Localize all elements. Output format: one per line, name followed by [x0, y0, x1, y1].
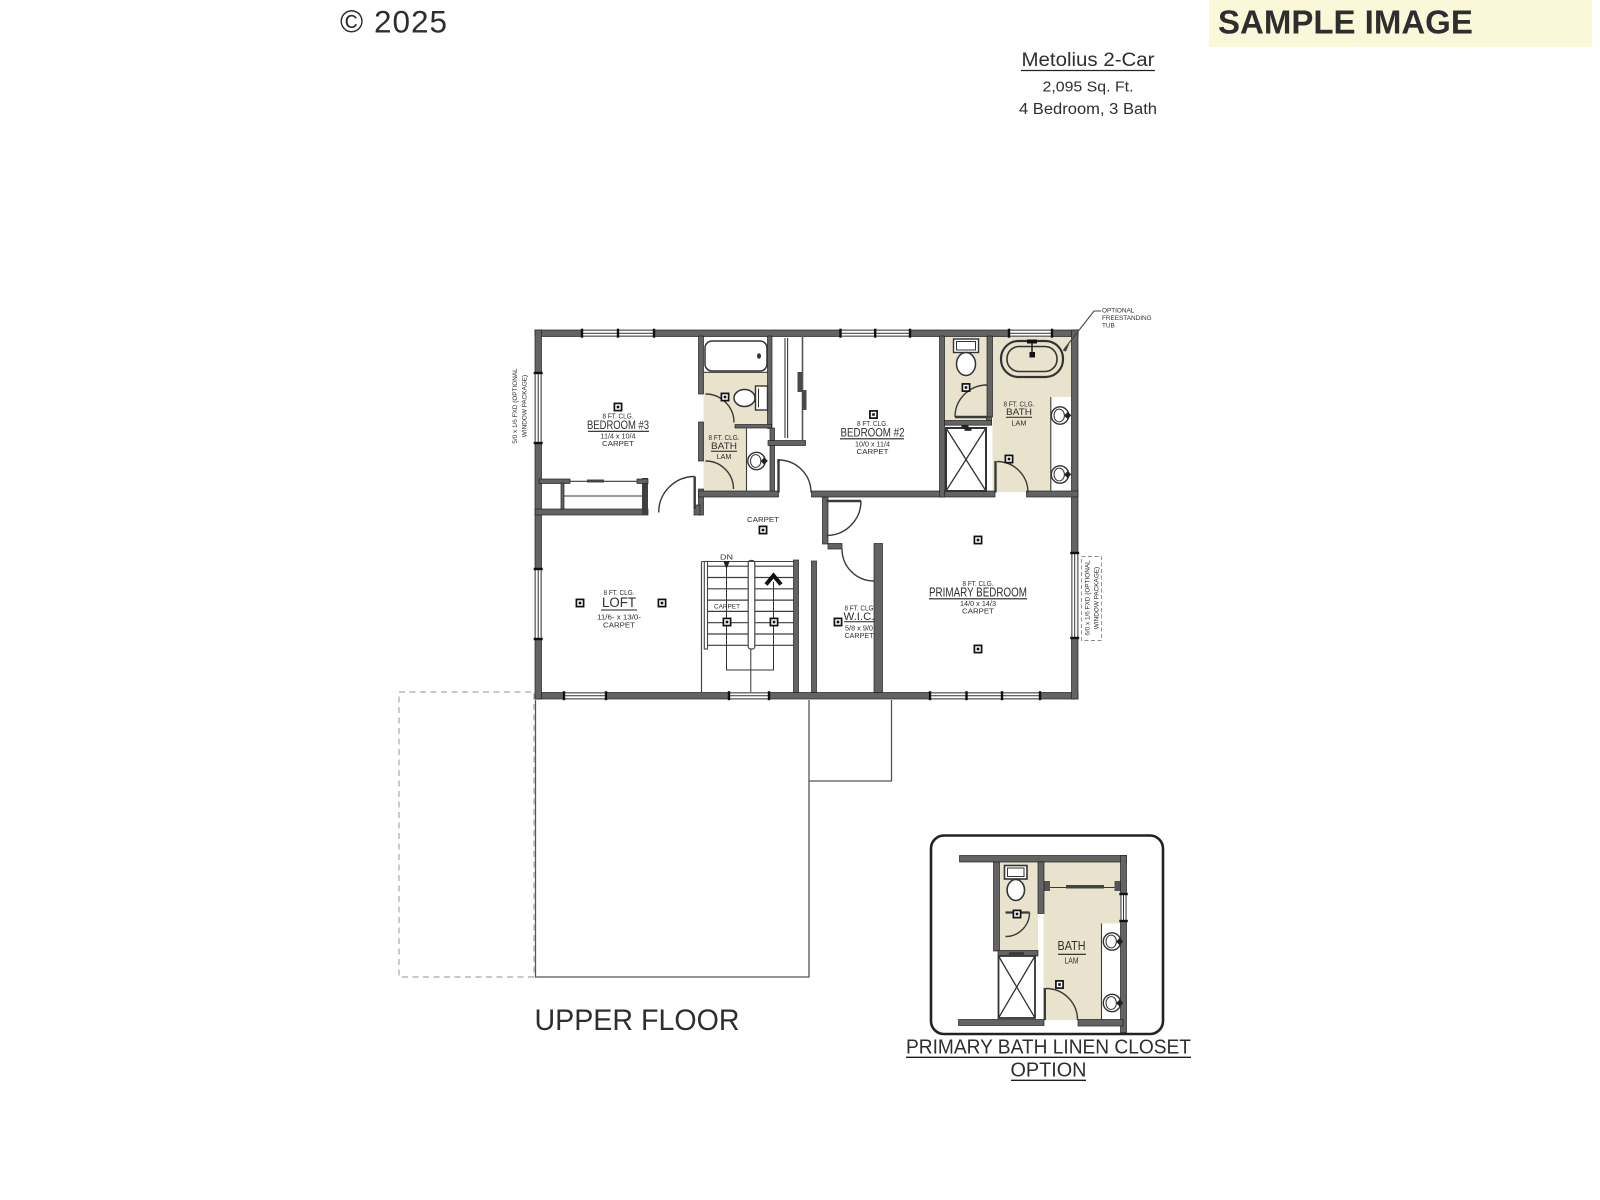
svg-text:11/4 x 10/4: 11/4 x 10/4 [601, 434, 636, 441]
svg-text:CARPET: CARPET [747, 517, 780, 524]
svg-text:6/0 x 1/6 FXD (OPTIONAL: 6/0 x 1/6 FXD (OPTIONAL [1085, 560, 1092, 636]
svg-text:LOFT: LOFT [602, 595, 636, 610]
svg-text:LAM: LAM [1065, 957, 1079, 966]
svg-text:2,095 Sq. Ft.: 2,095 Sq. Ft. [1043, 79, 1134, 96]
svg-text:WINDOW PACKAGE): WINDOW PACKAGE) [522, 375, 529, 437]
svg-text:W.I.C.: W.I.C. [844, 611, 875, 623]
svg-text:PRIMARY BEDROOM: PRIMARY BEDROOM [929, 585, 1027, 600]
svg-text:OPTION: OPTION [1011, 1059, 1087, 1082]
svg-text:DN: DN [720, 555, 733, 562]
svg-text:Metolius 2-Car: Metolius 2-Car [1022, 50, 1156, 71]
svg-text:LAM: LAM [717, 454, 732, 461]
svg-text:BEDROOM #3: BEDROOM #3 [587, 418, 649, 432]
svg-text:OPTIONAL: OPTIONAL [1102, 308, 1135, 315]
svg-text:SAMPLE IMAGE: SAMPLE IMAGE [1218, 4, 1473, 41]
svg-text:CARPET: CARPET [714, 604, 740, 611]
svg-text:FREESTANDING: FREESTANDING [1102, 315, 1152, 322]
svg-text:5/0 x 1/6 FXD (OPTIONAL: 5/0 x 1/6 FXD (OPTIONAL [512, 368, 519, 444]
svg-text:10/0 x 11/4: 10/0 x 11/4 [855, 442, 890, 449]
svg-text:© 2025: © 2025 [340, 4, 448, 40]
svg-text:CARPET: CARPET [857, 449, 890, 456]
svg-text:WINDOW PACKAGE): WINDOW PACKAGE) [1094, 567, 1101, 629]
svg-text:BATH: BATH [711, 441, 737, 452]
svg-text:BATH: BATH [1006, 407, 1032, 418]
svg-text:LAM: LAM [1012, 421, 1027, 428]
svg-text:5/8 x 9/0: 5/8 x 9/0 [845, 626, 873, 633]
svg-text:BATH: BATH [1058, 939, 1086, 953]
svg-text:14/0 x 14/3: 14/0 x 14/3 [960, 601, 996, 608]
svg-text:PRIMARY BATH LINEN CLOSET: PRIMARY BATH LINEN CLOSET [906, 1036, 1191, 1059]
svg-text:TUB: TUB [1102, 323, 1115, 330]
svg-text:CARPET: CARPET [603, 623, 636, 630]
svg-text:11/6- x 13/0-: 11/6- x 13/0- [597, 615, 642, 622]
svg-text:CARPET: CARPET [962, 609, 995, 616]
svg-text:CARPET: CARPET [602, 441, 635, 448]
svg-text:UPPER FLOOR: UPPER FLOOR [535, 1004, 740, 1037]
svg-text:CARPET: CARPET [845, 633, 875, 640]
svg-text:BEDROOM #2: BEDROOM #2 [841, 426, 905, 440]
svg-text:4 Bedroom, 3 Bath: 4 Bedroom, 3 Bath [1019, 101, 1157, 118]
